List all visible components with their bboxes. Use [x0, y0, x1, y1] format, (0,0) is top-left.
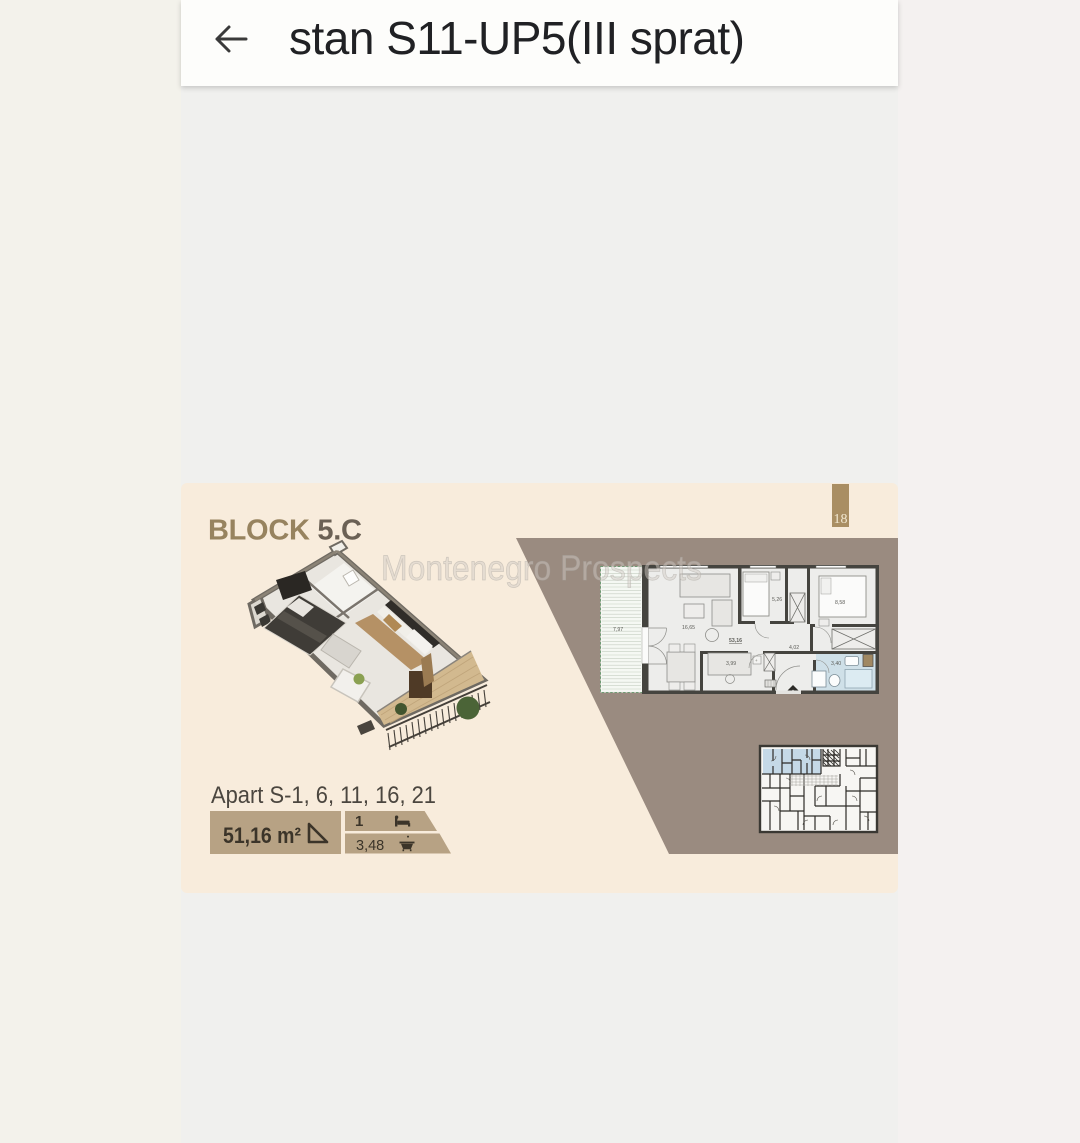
svg-text:51,16 m²: 51,16 m²	[223, 823, 301, 848]
svg-text:3,48: 3,48	[356, 838, 384, 854]
svg-text:1: 1	[355, 813, 363, 830]
svg-text:4,02: 4,02	[789, 645, 799, 651]
svg-text:3,40: 3,40	[831, 661, 841, 667]
svg-text:7,97: 7,97	[613, 627, 623, 633]
svg-text:Montenegro Prospects: Montenegro Prospects	[381, 549, 702, 588]
svg-text:18: 18	[834, 512, 848, 527]
svg-text:8,58: 8,58	[835, 600, 845, 606]
svg-text:Apart S-1, 6, 11, 16, 21: Apart S-1, 6, 11, 16, 21	[211, 782, 436, 809]
svg-text:53,16: 53,16	[729, 638, 742, 644]
svg-text:+: +	[755, 658, 758, 663]
svg-text:16,65: 16,65	[682, 625, 695, 631]
svg-text:5,26: 5,26	[772, 597, 782, 603]
svg-text:3,99: 3,99	[726, 661, 736, 667]
